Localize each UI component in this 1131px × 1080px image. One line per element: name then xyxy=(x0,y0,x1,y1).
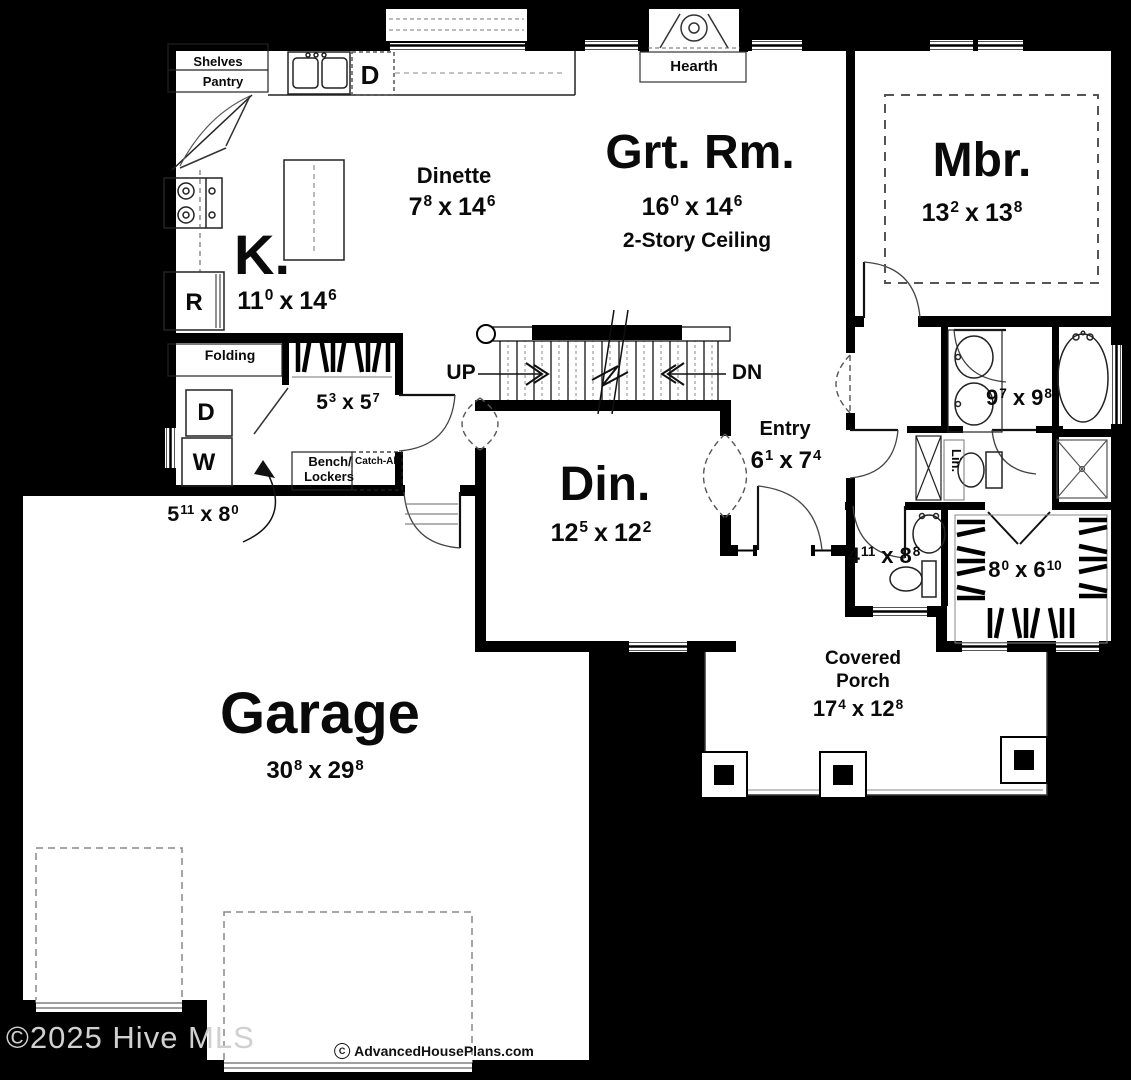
bench-label: Bench/ xyxy=(308,455,351,469)
master-bath-dim: 97x98 xyxy=(986,386,1052,409)
catch-all-label: Catch-All xyxy=(355,457,399,468)
master-bedroom-label: Mbr. xyxy=(933,136,1032,186)
entry-dim: 61x74 xyxy=(751,448,822,473)
tub-window xyxy=(1111,345,1122,424)
copyright-icon: C xyxy=(334,1043,350,1059)
stair-rail-wall xyxy=(532,325,682,340)
lockers-label: Lockers xyxy=(304,470,354,484)
powder-dim: 411x88 xyxy=(848,544,921,567)
great-room-label: Grt. Rm. xyxy=(605,128,794,178)
closet-dim: 80x610 xyxy=(988,558,1061,581)
shelves-label: Shelves xyxy=(193,55,242,69)
dining-window xyxy=(629,641,687,652)
kitchen-dim: 110x146 xyxy=(237,288,336,314)
plan-credit-text: AdvancedHousePlans.com xyxy=(354,1043,534,1059)
garage-door-right xyxy=(224,1060,472,1072)
powder-window xyxy=(873,606,927,617)
dinette-label: Dinette xyxy=(417,164,492,187)
up-label: UP xyxy=(446,362,475,384)
dining-dim: 125x122 xyxy=(551,520,652,546)
refrigerator-label: R xyxy=(185,290,202,315)
porch-label-line2: Porch xyxy=(836,672,890,692)
down-label: DN xyxy=(732,362,762,384)
linen-label: Lin. xyxy=(949,449,964,472)
garage-door-left xyxy=(36,1000,182,1012)
dinette-dim: 78x146 xyxy=(409,194,496,220)
laundry-dim: 511x80 xyxy=(167,503,238,526)
great-room-dim: 160x146 xyxy=(642,194,743,220)
floor-plan: Shelves Pantry D Hearth Dinette 78x146 G… xyxy=(0,0,1131,1080)
dishwasher-label: D xyxy=(361,62,380,89)
hearth-label: Hearth xyxy=(670,59,718,75)
dining-label: Din. xyxy=(560,460,651,510)
pantry-label: Pantry xyxy=(203,75,243,89)
entry-label: Entry xyxy=(759,419,810,440)
laundry-window xyxy=(165,428,176,468)
porch-column-core xyxy=(1014,750,1034,770)
washer-label: W xyxy=(193,450,216,475)
porch-column-core xyxy=(833,765,853,785)
plan-credit: C AdvancedHousePlans.com xyxy=(334,1043,534,1059)
dinette-bay xyxy=(385,8,528,42)
newel-post xyxy=(477,325,495,343)
great-room-note: 2-Story Ceiling xyxy=(623,230,771,252)
mudroom-dim: 53x57 xyxy=(316,392,380,414)
garage-dim: 308x298 xyxy=(266,758,363,783)
garage-label: Garage xyxy=(220,684,420,745)
kitchen-label: K. xyxy=(234,226,290,285)
master-bedroom-window xyxy=(930,40,1023,51)
porch-label-line1: Covered xyxy=(825,649,901,669)
dryer-label: D xyxy=(197,400,214,425)
folding-label: Folding xyxy=(205,348,256,363)
mls-watermark: ©2025 Hive MLS xyxy=(6,1020,255,1056)
great-room-window xyxy=(585,40,638,51)
porch-column-core xyxy=(714,765,734,785)
great-room-window xyxy=(752,40,802,51)
master-bedroom-dim: 132x138 xyxy=(922,200,1023,226)
porch-dim: 174x128 xyxy=(813,697,903,720)
